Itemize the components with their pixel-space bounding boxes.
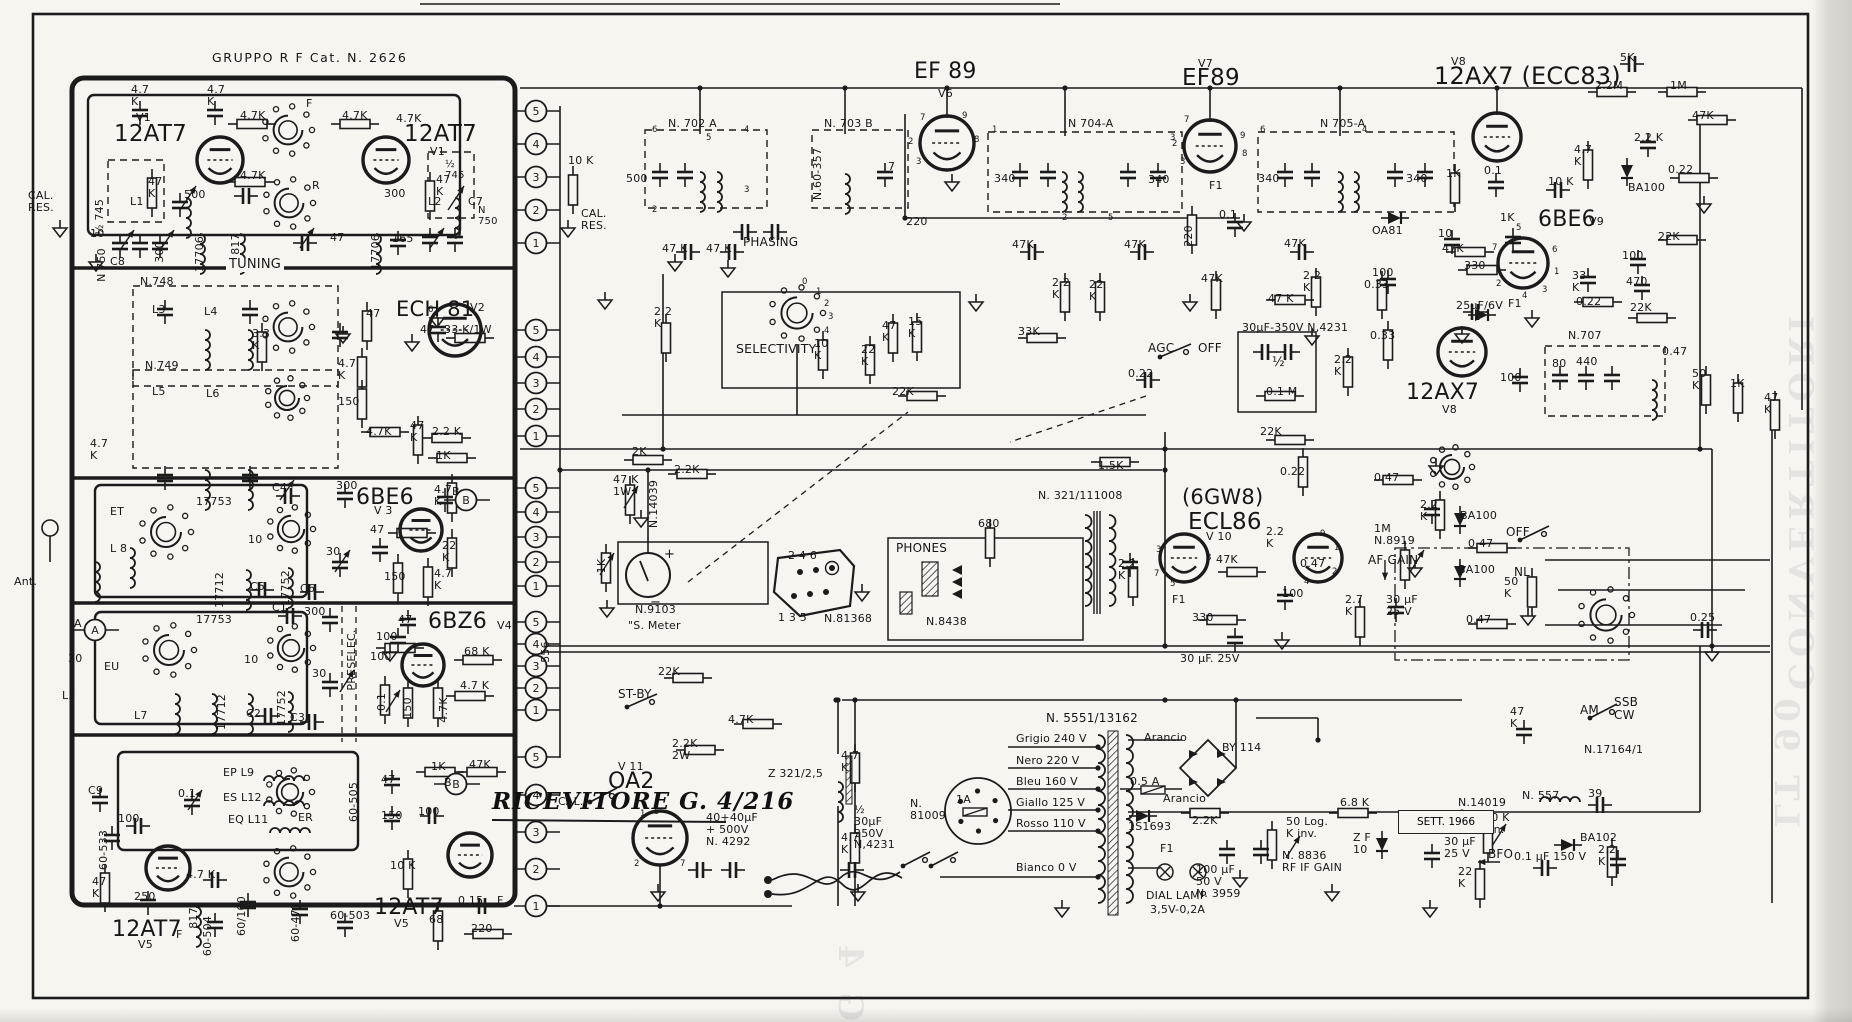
schematic-label: 4.7 K — [841, 750, 859, 774]
schematic-label: 3 — [1156, 546, 1162, 555]
schematic-label: 1 — [1334, 544, 1340, 553]
schematic-label: 47K — [1201, 273, 1223, 285]
rotary-contact — [1469, 464, 1474, 469]
rotary-contact — [309, 789, 314, 794]
schematic-label: ST-BY — [618, 688, 652, 701]
terminal-number: 5 — [533, 751, 540, 764]
schematic-label: 340 — [994, 173, 1016, 185]
schematic-label: 5 — [1108, 214, 1114, 223]
diode-symbol — [1388, 212, 1401, 224]
schematic-label: 300 — [336, 480, 358, 492]
schematic-label: C8 — [110, 256, 125, 268]
rotary-contact — [277, 664, 282, 669]
schematic-label: 30 µF. 25V — [1180, 653, 1240, 665]
rotary-contact — [171, 623, 176, 628]
coil-symbol — [1338, 172, 1343, 212]
schematic-label: 4.7 K — [131, 84, 149, 108]
schematic-label: N.17164/1 — [1584, 744, 1643, 756]
rotary-wiper — [1590, 599, 1621, 630]
schematic-label: 340 — [1406, 173, 1428, 185]
schematic-label: 500 — [626, 173, 648, 185]
schematic-label: AGC — [1148, 342, 1174, 355]
connector-pin — [829, 565, 835, 571]
schematic-label: 1S1693 — [1128, 821, 1171, 833]
schematic-label: 4 — [744, 126, 750, 135]
schematic-label: 1 3 5 — [778, 612, 807, 624]
terminal-number: 5 — [533, 105, 540, 118]
rotary-hub — [1596, 605, 1616, 625]
schematic-label: 300 — [304, 606, 326, 618]
ground-symbol — [53, 228, 67, 237]
junction-dot — [1337, 85, 1342, 90]
terminal-number: 3 — [533, 377, 540, 390]
schematic-label: 2.2 K — [1634, 132, 1663, 144]
rotary-contact — [291, 768, 296, 773]
rotary-contact — [309, 324, 314, 329]
schematic-label: 5 — [1170, 580, 1176, 589]
schematic-label: 12AT7 — [404, 122, 477, 147]
junction-dot — [1062, 85, 1067, 90]
schematic-label: 12AX7 (ECC83) — [1434, 64, 1621, 90]
rotary-contact — [309, 127, 314, 132]
rotary-contact — [274, 413, 279, 418]
rotary-contact — [151, 551, 156, 556]
schematic-label: BFO — [1488, 848, 1513, 861]
schematic-label: 10 K — [568, 155, 594, 167]
schematic-label: 2 — [908, 138, 914, 147]
rotary-contact — [264, 209, 269, 214]
schematic-label: C9 — [88, 785, 103, 797]
schematic-label: 0.22 — [1128, 368, 1153, 380]
schematic-label: 8 — [1206, 554, 1212, 563]
schematic-label: 6BZ6 — [428, 610, 487, 634]
coil-symbol — [205, 330, 210, 370]
tube-cathode — [459, 863, 481, 869]
rotary-contact — [291, 811, 296, 816]
schematic-label: 17753 — [196, 496, 232, 508]
junction-dot — [1162, 697, 1167, 702]
rotary-contact — [310, 645, 315, 650]
schematic-label: 2 — [1062, 214, 1068, 223]
paper-edge-bottom — [0, 1008, 1852, 1022]
schematic-label: 165 — [392, 233, 414, 245]
schematic-label: 817 — [188, 907, 200, 929]
terminal-number: 3 — [533, 171, 540, 184]
coil-symbol — [186, 198, 191, 238]
rotary-contact — [277, 545, 282, 550]
rotary-contact — [273, 148, 278, 153]
terminal-number: 1 — [533, 237, 540, 250]
tube-cathode — [1485, 145, 1509, 151]
schematic-label: N.8438 — [926, 616, 967, 628]
resistor-symbol — [424, 567, 433, 597]
schematic-label: 3 — [1542, 286, 1548, 295]
schematic-label: 2 — [824, 300, 830, 309]
schematic-label: 470 — [1626, 276, 1648, 288]
schematic-label: BA100 — [1458, 564, 1495, 576]
rotary-contact — [168, 505, 173, 510]
junction-dot — [842, 85, 847, 90]
rotary-contact — [1579, 604, 1584, 609]
terminal-number: 2 — [533, 204, 540, 217]
schematic-label: 0 — [802, 278, 808, 287]
schematic-label: 4.7 K — [1574, 144, 1592, 168]
schematic-label: 50 K — [1692, 368, 1706, 392]
schematic-label: 17706 — [194, 236, 206, 272]
output-transformer — [1109, 515, 1116, 606]
rotary-contact — [276, 808, 281, 813]
schematic-label: 9 — [962, 112, 968, 121]
schematic-label: DIAL LAMP — [1146, 890, 1207, 902]
rotary-hub — [279, 121, 297, 139]
adjust-arrow — [1478, 859, 1485, 865]
ground-symbol — [1305, 336, 1319, 345]
schematic-label: 0.1 — [178, 788, 196, 800]
schematic-label: 100 — [418, 806, 440, 818]
rotary-contact — [277, 507, 282, 512]
schematic-label: 22 K — [1089, 279, 1103, 303]
ground-symbol — [1275, 640, 1289, 649]
schematic-label: 1 — [816, 288, 822, 297]
switch-lever — [903, 852, 930, 866]
schematic-label: 3 — [916, 158, 922, 167]
schematic-label: BA102 — [1580, 832, 1617, 844]
schematic-label: TUNING — [226, 258, 284, 272]
schematic-label: 7 — [1154, 570, 1160, 579]
schematic-label: N.14039 — [648, 480, 660, 528]
schematic-label: BA100 — [1460, 510, 1497, 522]
schematic-label: 4.7 K — [434, 568, 452, 592]
schematic-label: 2 4 6 — [788, 550, 817, 562]
schematic-label: N 750 — [96, 248, 108, 282]
connector-pin — [791, 593, 797, 599]
schematic-label: 1 — [992, 126, 998, 135]
schematic-label: 4 — [824, 327, 830, 336]
rotary-contact — [154, 669, 159, 674]
schematic-label: 60-533 — [98, 830, 110, 870]
bleed-through-text: LT 90 — [1766, 692, 1806, 828]
schematic-label: 6 — [1552, 246, 1558, 255]
schematic-label: 220 — [906, 216, 928, 228]
rotary-contact — [1608, 638, 1613, 643]
schematic-label: 7 — [1492, 244, 1498, 253]
schematic-label: 47 K — [410, 420, 424, 444]
revision-text: SETT. 1966 — [1417, 816, 1475, 828]
ground-symbol — [1325, 892, 1339, 901]
schematic-label: 15 K — [908, 316, 922, 340]
schematic-label: 0.5 A — [1130, 776, 1160, 788]
schematic-label: R — [312, 180, 320, 192]
schematic-label: N.748 — [140, 276, 174, 288]
rotary-contact — [143, 656, 148, 661]
schematic-label: 47 K — [1764, 392, 1778, 416]
schematic-sheet: 5432154321543215432154321BBA 4.7 K4.7 K4… — [0, 0, 1852, 1022]
schematic-label: 3 — [1180, 158, 1186, 167]
rotary-contact — [1439, 482, 1444, 487]
transformer-core — [1108, 731, 1118, 915]
schematic-label: 8 — [1242, 150, 1248, 159]
rotary-contact — [304, 804, 309, 809]
rotary-wiper — [154, 635, 184, 665]
schematic-label: 2.2 K — [654, 306, 672, 330]
schematic-label: A — [74, 618, 82, 630]
ground-symbol — [969, 302, 983, 311]
coil-symbol — [717, 172, 722, 212]
terminal-number: 2 — [533, 403, 540, 416]
junction-dot — [557, 467, 562, 472]
terminal-number: 1 — [533, 430, 540, 443]
rotary-hub — [280, 863, 298, 881]
ground-symbol — [598, 300, 612, 309]
rotary-contact — [151, 508, 156, 513]
schematic-label: 47K — [1012, 239, 1034, 251]
terminal-number: 3 — [533, 531, 540, 544]
connector-pin — [797, 569, 803, 575]
rotary-contact — [305, 216, 310, 221]
schematic-label: 150 — [402, 697, 414, 719]
schematic-label: OFF — [1198, 342, 1222, 355]
rotary-contact — [171, 672, 176, 677]
schematic-label: 22K — [1658, 231, 1680, 243]
schematic-label: ½ — [1272, 356, 1285, 370]
schematic-label: 33K — [1018, 326, 1040, 338]
schematic-label: 2.2 K — [1303, 270, 1321, 294]
schematic-label: 22K — [892, 386, 914, 398]
schematic-label: Giallo 125 V — [1016, 797, 1085, 809]
rotary-contact — [304, 143, 309, 148]
schematic-label: 4.7 K — [186, 869, 215, 881]
schematic-label: 47 K — [92, 876, 106, 900]
schematic-label: 6BE6 — [1538, 208, 1596, 232]
schematic-label: V4 — [497, 620, 512, 632]
coil-symbol — [130, 548, 135, 588]
schematic-label: 4 — [1522, 292, 1528, 301]
schematic-label: 7 — [1184, 116, 1190, 125]
schematic-label: N.14019 — [1458, 797, 1506, 809]
schematic-label: N 705-A — [1320, 118, 1365, 130]
schematic-label: Nero 220 V — [1016, 755, 1080, 767]
schematic-label: 10 — [244, 654, 258, 666]
schematic-label: 80 — [1552, 358, 1566, 370]
dashed-link — [1010, 396, 1146, 442]
switch-contact — [1542, 532, 1547, 537]
schematic-label: 10 K — [1548, 176, 1574, 188]
schematic-label: ½ 30µF 350V N,4231 — [854, 804, 895, 851]
antenna-terminal — [42, 520, 58, 536]
schematic-label: 47 — [366, 308, 380, 320]
schematic-label: − — [650, 596, 661, 610]
rotary-contact — [288, 415, 293, 420]
rotary-wiper — [275, 858, 304, 887]
schematic-label: 47 K — [1510, 706, 1524, 730]
schematic-label: 817 — [230, 233, 242, 255]
schematic-label: 0.1 — [376, 693, 388, 711]
ground-symbol — [855, 592, 869, 601]
schematic-label: 300 — [384, 188, 406, 200]
schematic-label: F1 — [1160, 843, 1174, 855]
terminal-number: 1 — [533, 580, 540, 593]
rotary-contact — [304, 309, 309, 314]
schematic-label: V5 — [138, 939, 153, 951]
junction-dot — [1233, 697, 1238, 702]
schematic-label: F1 — [1508, 298, 1522, 310]
schematic-label: N. 5551/13162 — [1046, 712, 1138, 725]
ground-symbol — [1237, 222, 1251, 231]
schematic-label: 1K — [436, 450, 451, 462]
schematic-label: 150 — [381, 810, 403, 822]
schematic-label: 39 — [1588, 788, 1602, 800]
ground-symbol — [405, 342, 419, 351]
schematic-label: 0.47 — [1374, 472, 1399, 484]
schematic-label: 4.7K — [728, 714, 754, 726]
revision-box: SETT. 1966 — [1398, 810, 1494, 834]
rotary-contact — [305, 885, 310, 890]
schematic-label: 2K — [632, 446, 647, 458]
schematic-label: C3 — [290, 712, 305, 724]
rotary-contact — [814, 327, 819, 332]
schematic-label: L 8 — [110, 543, 127, 555]
schematic-label: ECH 81 — [396, 298, 474, 320]
schematic-label: C2 — [246, 708, 261, 720]
schematic-label: 2.2K — [1192, 815, 1218, 827]
schematic-label: N 750 — [478, 206, 498, 227]
schematic-label: EF 89 — [914, 60, 977, 84]
junction-dot — [1162, 643, 1167, 648]
schematic-label: 60-477 — [290, 902, 302, 942]
rotary-wiper — [278, 516, 304, 542]
rotary-contact — [268, 519, 273, 524]
schematic-label: 47K — [1124, 239, 1146, 251]
rotary-hub — [283, 640, 300, 657]
schematic-label: V1 — [430, 146, 445, 158]
rotary-contact — [168, 554, 173, 559]
rotary-contact — [266, 389, 271, 394]
schematic-label: 1K — [1730, 378, 1745, 390]
schematic-label: PHONES — [896, 542, 947, 555]
schematic-label: Grigio 240 V — [1016, 733, 1087, 745]
rotary-contact — [183, 545, 188, 550]
schematic-label: Z F 10 — [1353, 832, 1371, 856]
jack-arrow — [952, 577, 962, 587]
ground-symbol — [1183, 302, 1197, 311]
rotary-contact — [310, 526, 315, 531]
schematic-label: 150 — [338, 396, 360, 408]
schematic-label: F1 — [1172, 594, 1186, 606]
schematic-label: 22 K — [442, 540, 456, 564]
resistor-symbol — [1227, 568, 1257, 577]
rotary-contact — [188, 529, 193, 534]
rotary-contact — [266, 402, 271, 407]
schematic-label: 100 — [118, 813, 140, 825]
schematic-label: 2.7 K — [1345, 594, 1363, 618]
rotary-contact — [154, 626, 159, 631]
terminal-number: 3 — [533, 826, 540, 839]
selector-pin — [976, 828, 981, 833]
schematic-label: 47 — [330, 232, 344, 244]
schematic-label: 1K — [1446, 168, 1461, 180]
schematic-label: 47K — [1442, 243, 1464, 255]
rotary-hub — [280, 194, 298, 212]
plug-prong — [764, 890, 772, 898]
schematic-label: 60-504 — [202, 916, 214, 956]
schematic-label: V2 — [470, 302, 485, 314]
schematic-label: 3 — [744, 186, 750, 195]
schematic-label: 2.2 K — [1266, 526, 1284, 550]
schematic-label: N.707 — [1568, 330, 1602, 342]
rotary-hub — [157, 523, 176, 542]
schematic-label: 47 — [381, 774, 395, 786]
schematic-label: 220 — [1183, 225, 1195, 247]
rotary-contact — [304, 395, 309, 400]
connector-pin — [807, 591, 813, 597]
rotary-contact — [290, 104, 295, 109]
schematic-label: N. 321/111008 — [1038, 490, 1123, 502]
schematic-label: 22 K — [861, 344, 875, 368]
rotary-contact — [268, 653, 273, 658]
terminal-number: B — [452, 778, 460, 791]
rotary-contact — [264, 878, 269, 883]
rotary-contact — [292, 505, 297, 510]
terminal-number: 5 — [533, 324, 540, 337]
jack-arrow — [952, 565, 962, 575]
schematic-label: 17753 — [196, 614, 232, 626]
rotary-hub — [279, 318, 297, 336]
adjust-arrow — [287, 480, 294, 488]
schematic-label: V6 — [938, 88, 953, 100]
rotary-contact — [304, 340, 309, 345]
schematic-label: 1K — [1500, 212, 1515, 224]
terminal-number: 5 — [533, 616, 540, 629]
schematic-label: 17712 — [214, 572, 226, 608]
tube-cathode — [647, 847, 674, 854]
junction-dot — [1697, 446, 1702, 451]
resistor-symbol — [1528, 577, 1537, 607]
connector-pin — [823, 589, 829, 595]
diode-symbol — [1621, 165, 1633, 178]
output-transformer — [1085, 515, 1092, 606]
rotary-hub — [1444, 459, 1459, 474]
schematic-label: V5 — [394, 918, 409, 930]
adjust-arrow — [167, 230, 174, 238]
rotary-wiper — [781, 297, 812, 328]
resistor-symbol — [1637, 314, 1667, 323]
selector-pin — [993, 818, 998, 823]
ground-symbol — [721, 268, 735, 277]
coil-symbol — [1354, 172, 1359, 212]
schematic-label: 4.7K — [366, 426, 392, 438]
schematic-label: BA100 — [1628, 182, 1665, 194]
schematic-label: 30µF-350V N,4231 — [1242, 322, 1348, 334]
rotary-contact — [291, 893, 296, 898]
tube-cathode — [934, 152, 961, 159]
coil-symbol — [700, 172, 705, 212]
schematic-label: V 10 — [1206, 531, 1232, 543]
adjust-arrow — [127, 230, 134, 238]
schematic-label: 7 — [888, 161, 895, 173]
schematic-label: 6 — [428, 306, 434, 315]
schematic-label: 6.8 K — [1340, 797, 1369, 809]
adjust-arrow — [1417, 550, 1424, 558]
rotary-contact — [290, 301, 295, 306]
schematic-label: 2.2M — [1595, 80, 1623, 92]
rotary-wiper — [275, 189, 304, 218]
schematic-label: 47 — [420, 324, 434, 336]
schematic-label: 220 — [471, 923, 493, 935]
schematic-label: 0.33 — [1364, 279, 1389, 291]
schematic-label: 22K — [658, 666, 680, 678]
schematic-label: 0.15 — [458, 895, 483, 907]
rotary-contact — [273, 345, 278, 350]
